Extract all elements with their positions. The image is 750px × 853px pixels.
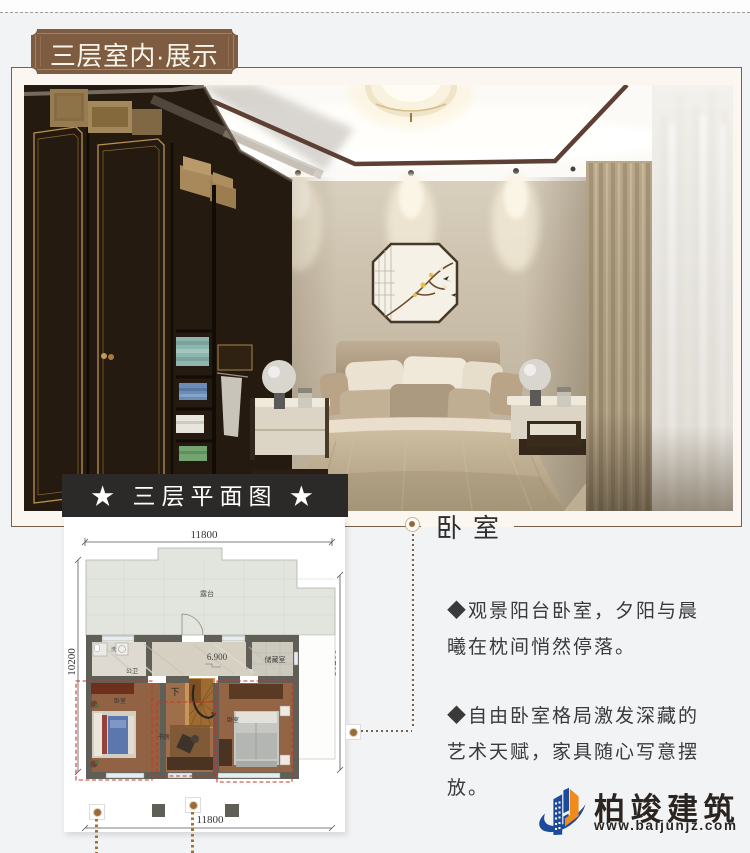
- svg-text:6.900: 6.900: [207, 652, 228, 662]
- svg-text:下: 下: [170, 687, 179, 697]
- svg-text:卧室: 卧室: [114, 697, 126, 705]
- svg-text:10200: 10200: [66, 648, 78, 676]
- svg-text:书房: 书房: [158, 733, 170, 741]
- svg-text:公卫: 公卫: [126, 668, 138, 675]
- svg-text:露台: 露台: [200, 589, 214, 598]
- svg-text:11800: 11800: [196, 814, 224, 826]
- svg-text:卧室: 卧室: [227, 716, 239, 724]
- svg-text:储藏室: 储藏室: [265, 655, 286, 664]
- svg-text:三层室内·展示: 三层室内·展示: [50, 41, 218, 71]
- svg-text:洗: 洗: [111, 646, 116, 653]
- svg-text:11800: 11800: [190, 529, 218, 541]
